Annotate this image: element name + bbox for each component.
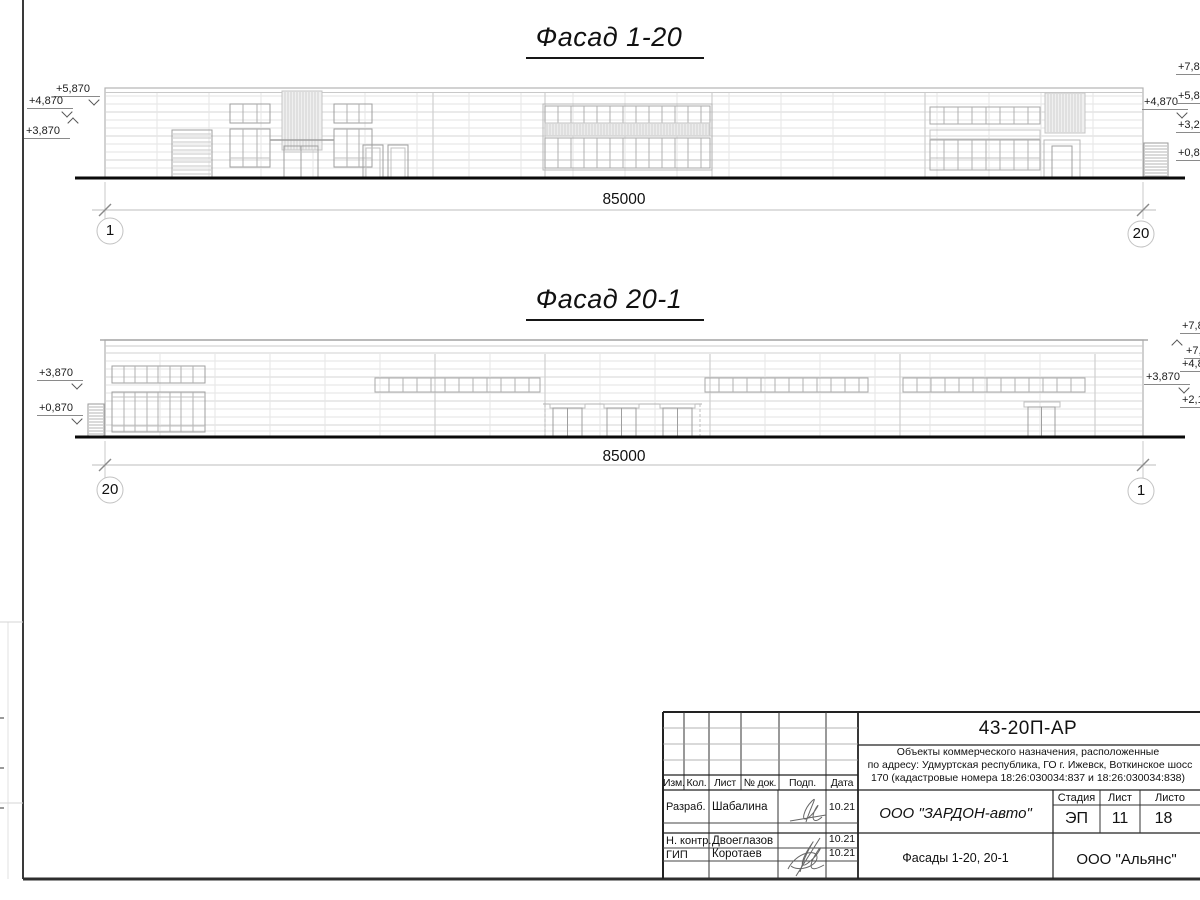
role-label: Разраб.: [666, 801, 706, 813]
design-company: ООО "ЗАРДОН-авто": [858, 805, 1053, 822]
sheets-header: Листо: [1141, 791, 1199, 805]
contractor-company: ООО "Альянс": [1053, 847, 1200, 873]
drawing-sheet: Фасад 1-20 +5,870 +4,870 +3,870 +4,870 +…: [0, 0, 1200, 900]
titleblock-col-header: Кол.: [684, 776, 709, 790]
person-name: Шабалина: [712, 801, 768, 813]
sheet-name: Фасады 1-20, 20-1: [858, 851, 1053, 865]
facade-20-1-drawing: [75, 340, 1185, 437]
date-value: 10.21: [827, 847, 857, 859]
titleblock-col-header: № док.: [741, 776, 779, 790]
elevation-mark: +0,870: [37, 402, 83, 416]
axis-label: 1: [1129, 483, 1153, 499]
elevation-mark: +3,870: [1144, 371, 1190, 385]
elevation-mark: +2,1: [1180, 394, 1200, 408]
stage-value: ЭП: [1053, 807, 1100, 831]
titleblock-col-header: Подп.: [779, 776, 826, 790]
elevation-mark: +7,8: [1180, 320, 1200, 334]
axis-label: 20: [1129, 226, 1153, 242]
facade2-dimension: 85000: [559, 448, 689, 466]
elevation-mark: +3,27: [1176, 119, 1200, 133]
axis-label: 20: [98, 482, 122, 498]
elevation-mark: +3,870: [37, 367, 83, 381]
elevation-mark: +7,87: [1176, 61, 1200, 75]
sheets-value: 18: [1141, 807, 1186, 831]
role-label: Н. контр.: [666, 835, 711, 847]
titleblock-col-header: Лист: [709, 776, 741, 790]
role-label: ГИП: [666, 849, 688, 861]
sheet-header: Лист: [1100, 791, 1140, 805]
sheet-value: 11: [1100, 807, 1140, 831]
signatures: [788, 799, 826, 876]
stage-header: Стадия: [1053, 791, 1100, 805]
person-name: Двоеглазов: [712, 835, 773, 847]
project-description-line: Объекты коммерческого назначения, распол…: [858, 746, 1198, 759]
elevation-mark: +5,87: [1176, 90, 1200, 104]
elevation-mark: +4,8: [1180, 358, 1200, 372]
elevation-mark: +7,: [1184, 345, 1200, 359]
facade1-dimension: 85000: [559, 191, 689, 209]
signature-icon: [800, 842, 824, 872]
date-value: 10.21: [827, 801, 857, 813]
signature-icon: [796, 838, 820, 876]
elevation-mark: +3,870: [24, 125, 70, 139]
person-name: Коротаев: [712, 848, 762, 860]
axis-label: 1: [98, 223, 122, 239]
facade1-title: Фасад 1-20: [455, 22, 775, 59]
facade-1-20-drawing: [75, 88, 1185, 179]
titleblock-col-header: Дата: [826, 776, 858, 790]
project-description-line: по адресу: Удмуртская республика, ГО г. …: [860, 759, 1200, 772]
doc-number: 43-20П-АР: [858, 714, 1198, 744]
facade2-title: Фасад 20-1: [455, 284, 775, 321]
titleblock-col-header: Изм.: [663, 776, 684, 790]
elevation-mark: +0,87: [1176, 147, 1200, 161]
project-description-line: 170 (кадастровые номера 18:26:030034:837…: [858, 772, 1198, 785]
date-value: 10.21: [827, 833, 857, 845]
elevation-mark: +4,870: [27, 95, 73, 109]
